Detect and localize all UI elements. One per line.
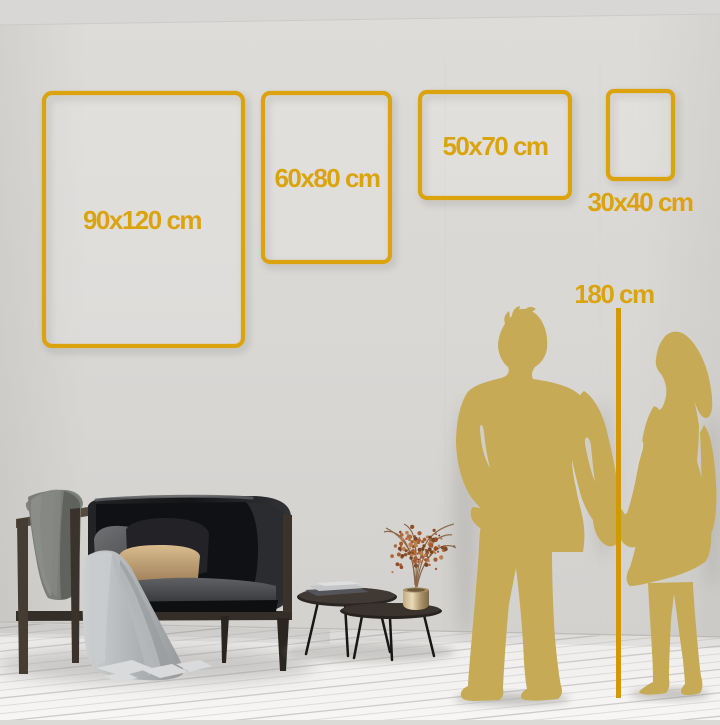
svg-text:60x80 cm: 60x80 cm [274,163,379,193]
svg-text:180 cm: 180 cm [574,279,654,309]
svg-text:50x70 cm: 50x70 cm [442,131,547,161]
svg-text:90x120 cm: 90x120 cm [83,205,201,235]
svg-text:30x40 cm: 30x40 cm [587,187,692,217]
